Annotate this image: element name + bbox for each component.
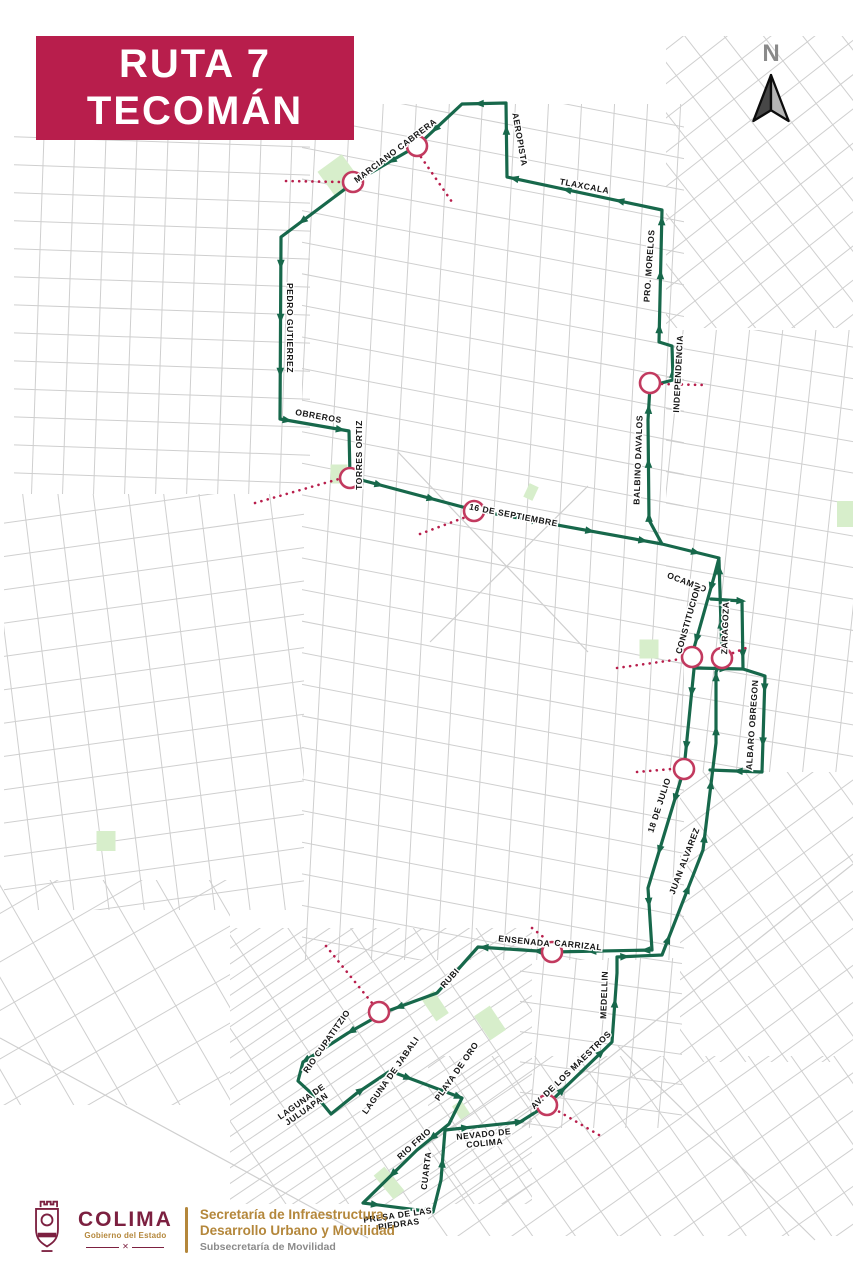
title-banner: RUTA 7 TECOMÁN [36, 36, 354, 140]
map-canvas: MARCIANO CABRERAAEROPISTATLAXCALAPRO. MO… [0, 0, 853, 1280]
street-labels: MARCIANO CABRERAAEROPISTATLAXCALAPRO. MO… [276, 112, 760, 1234]
colima-crest-logo [28, 1198, 66, 1262]
street-label-ocampo: OCAMPO [666, 570, 708, 594]
org-line1: Secretaría de Infraestructura, [200, 1207, 388, 1222]
poi-leader-nacional-monte-de-piedad [637, 769, 672, 772]
poi-marker-iglesia-tecoman [682, 647, 702, 667]
street-label-torres-ortiz: TORRES ORTIZ [354, 420, 364, 490]
street-label-pro-morelos: PRO. MORELOS [641, 229, 656, 302]
poi-leader-bachillerato-numero-5-y-20 [421, 157, 452, 202]
park [640, 640, 659, 659]
park [523, 483, 538, 501]
route-map-poster: MARCIANO CABRERAAEROPISTATLAXCALAPRO. MO… [0, 0, 853, 1280]
street-label-zaragoza: ZARAGOZA [719, 601, 731, 654]
org-line2: Desarrollo Urbano y Movilidad [200, 1223, 395, 1238]
poi-marker-parque-primaveras-del-real [369, 1002, 389, 1022]
org-block: Secretaría de Infraestructura, Desarroll… [200, 1207, 395, 1253]
park [97, 831, 116, 851]
street-label-medellin: MEDELLIN [598, 971, 610, 1019]
park [837, 501, 853, 527]
compass: N [742, 42, 800, 134]
park [474, 1006, 506, 1041]
street-label-juan-alvarez: JUAN ALVAREZ [667, 826, 702, 896]
brand-ornament: ✕ [86, 1243, 164, 1251]
poi-leader-bodega-aurrera-express [558, 1111, 599, 1135]
street-label-albaro-obregon: ALBARO OBREGON [744, 679, 760, 770]
poi-marker-nacional-monte-de-piedad [674, 759, 694, 779]
poi-leader-cruz-roja [662, 384, 703, 385]
compass-label: N [742, 42, 800, 66]
street-label-cuarta: CUARTA [419, 1151, 434, 1191]
brand-name: COLIMA [78, 1209, 173, 1230]
street-label-balbino-davalos: BALBINO DAVALOS [631, 415, 644, 505]
street-label-pedro-gutierrez: PEDRO GUTIERREZ [285, 283, 295, 373]
north-arrow-icon [748, 67, 794, 129]
route-title-line2: TECOMÁN [87, 88, 303, 135]
footer-divider [185, 1207, 188, 1253]
org-line3: Subsecretaría de Movilidad [200, 1241, 395, 1253]
poi-leader-iglesia-tecoman [617, 659, 681, 668]
route-title-line1: RUTA 7 [119, 41, 271, 88]
poi-marker-cruz-roja [640, 373, 660, 393]
street-label-rio-cupatitzio: RIO CUPATITZIO [301, 1008, 352, 1075]
brand-block: COLIMA Gobierno del Estado ✕ [78, 1209, 173, 1251]
street-label-laguna-de-jabali: LAGUNA DE JABALI [360, 1035, 421, 1116]
footer: COLIMA Gobierno del Estado ✕ Secretaría … [28, 1198, 395, 1262]
brand-subtitle: Gobierno del Estado [84, 1231, 166, 1240]
